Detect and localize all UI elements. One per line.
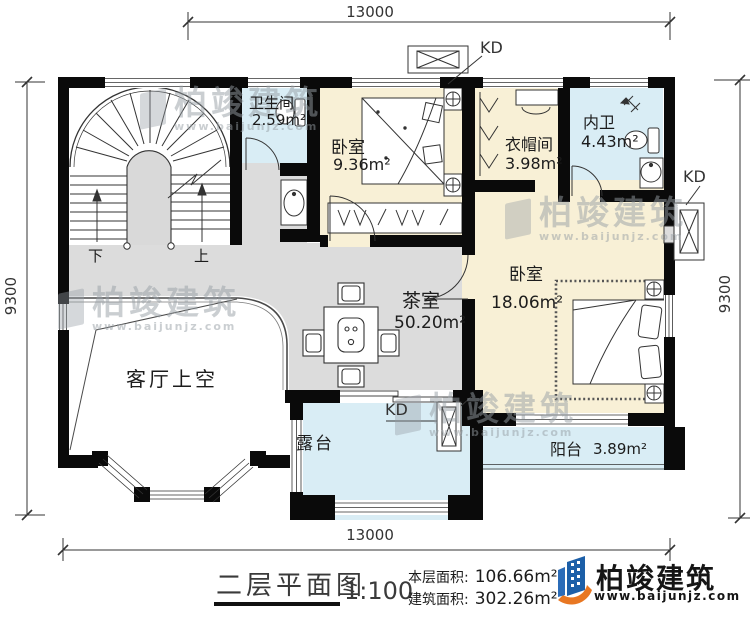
window-balcony-door [516, 413, 628, 426]
dim-top [183, 12, 675, 40]
window-left-wall [58, 304, 69, 330]
floor-area-row: 本层面积:106.66m² [408, 567, 558, 587]
label-bathroom-area: 2.59m² [252, 111, 306, 129]
company-website: www.baijunjz.com [594, 589, 741, 603]
bay-window-bottom [150, 488, 204, 502]
building-area-row: 建筑面积:302.26m² [408, 589, 558, 609]
label-stairs-up: 上 [194, 245, 209, 266]
label-balcony-name: 阳台 [550, 436, 582, 460]
label-kd-top: KD [480, 38, 503, 57]
building-area-label: 建筑面积: [408, 592, 469, 608]
label-bedroom-small-area: 9.36m² [333, 155, 391, 174]
label-ensuite-area: 4.43m² [581, 132, 639, 151]
label-bedroom-large-area: 18.06m² [491, 293, 563, 313]
floor-area-label: 本层面积: [408, 570, 469, 586]
label-kd-terrace: KD [385, 400, 408, 419]
floorplan-page: 柏竣建筑www.baijunjz.com 柏竣建筑www.baijunjz.co… [0, 0, 750, 620]
label-cloakroom-area: 3.98m² [505, 154, 563, 173]
pillow-icon [422, 103, 442, 123]
window-top-bedroom [352, 77, 440, 88]
building-area-value: 302.26m² [475, 589, 558, 609]
label-stairs-down: 下 [88, 245, 103, 266]
scale-label: 1:100 [344, 577, 413, 605]
wardrobe-icon [328, 203, 462, 233]
floor-area-value: 106.66m² [475, 567, 558, 587]
label-terrace: 露台 [296, 429, 334, 454]
window-right-wall [664, 295, 675, 337]
window-top-stairs [105, 77, 190, 88]
window-top-cloakroom [483, 77, 563, 88]
label-living-void: 客厅上空 [126, 363, 218, 392]
label-tea-room-area: 50.20m² [394, 313, 466, 333]
pillow-icon [423, 145, 442, 164]
dim-right-value: 9300 [716, 275, 734, 313]
label-tea-room-name: 茶室 [402, 286, 440, 313]
label-kd-right: KD [683, 167, 706, 186]
label-bathroom-name: 卫生间 [249, 92, 294, 113]
window-top-bathroom [248, 77, 300, 88]
label-cloakroom-name: 衣帽间 [505, 131, 553, 155]
label-ensuite-name: 内卫 [583, 109, 615, 133]
dim-left-value: 9300 [2, 277, 20, 315]
window-terrace-bottom [335, 500, 448, 515]
bay-window-floor [98, 455, 258, 492]
label-balcony-area: 3.89m² [593, 440, 647, 458]
dim-bottom-value: 13000 [330, 526, 410, 544]
title-underline [214, 602, 340, 606]
window-top-ensuite [590, 77, 648, 88]
dim-top-value: 13000 [330, 3, 410, 21]
dresser-icon [516, 90, 558, 105]
pillow-icon [638, 305, 662, 339]
label-bedroom-large-name: 卧室 [509, 260, 543, 285]
pillow-icon [638, 345, 661, 379]
company-logo-icon [554, 554, 594, 616]
